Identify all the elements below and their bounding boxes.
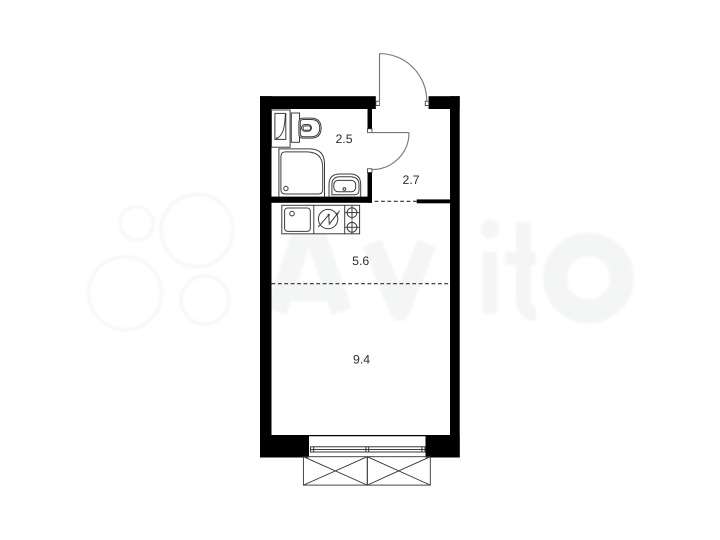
svg-text:9.4: 9.4 — [353, 352, 370, 366]
svg-text:2.5: 2.5 — [335, 132, 352, 146]
svg-text:2.7: 2.7 — [403, 173, 420, 187]
svg-text:5.6: 5.6 — [352, 254, 369, 268]
